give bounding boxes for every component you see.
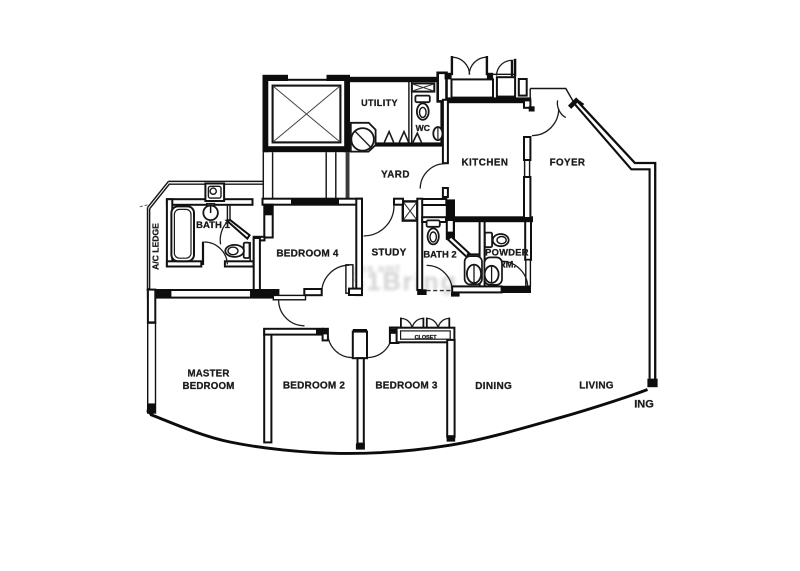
svg-text:WC: WC	[416, 123, 430, 133]
svg-text:BEDROOM 2: BEDROOM 2	[283, 380, 346, 391]
svg-text:LIVING: LIVING	[579, 381, 614, 392]
svg-text:DINING: DINING	[475, 381, 512, 392]
svg-text:BEDROOM 4: BEDROOM 4	[276, 249, 339, 260]
svg-text:POWDER: POWDER	[485, 247, 529, 257]
svg-text:A/C LEDGE: A/C LEDGE	[151, 223, 161, 270]
svg-text:KITCHEN: KITCHEN	[461, 158, 508, 169]
svg-text:YARD: YARD	[381, 170, 410, 181]
svg-text:STUDY: STUDY	[372, 248, 407, 259]
svg-text:BEDROOM 3: BEDROOM 3	[375, 380, 438, 391]
svg-text:FOYER: FOYER	[550, 158, 586, 169]
svg-text:BEDROOM: BEDROOM	[183, 381, 235, 392]
svg-text:MASTER: MASTER	[187, 369, 229, 380]
svg-text:BATH 2: BATH 2	[423, 249, 456, 260]
svg-text:ING: ING	[634, 399, 654, 411]
svg-text:CLOSET: CLOSET	[415, 335, 438, 341]
svg-text:BATH 1: BATH 1	[196, 220, 231, 231]
svg-text:UTILITY: UTILITY	[361, 98, 398, 108]
